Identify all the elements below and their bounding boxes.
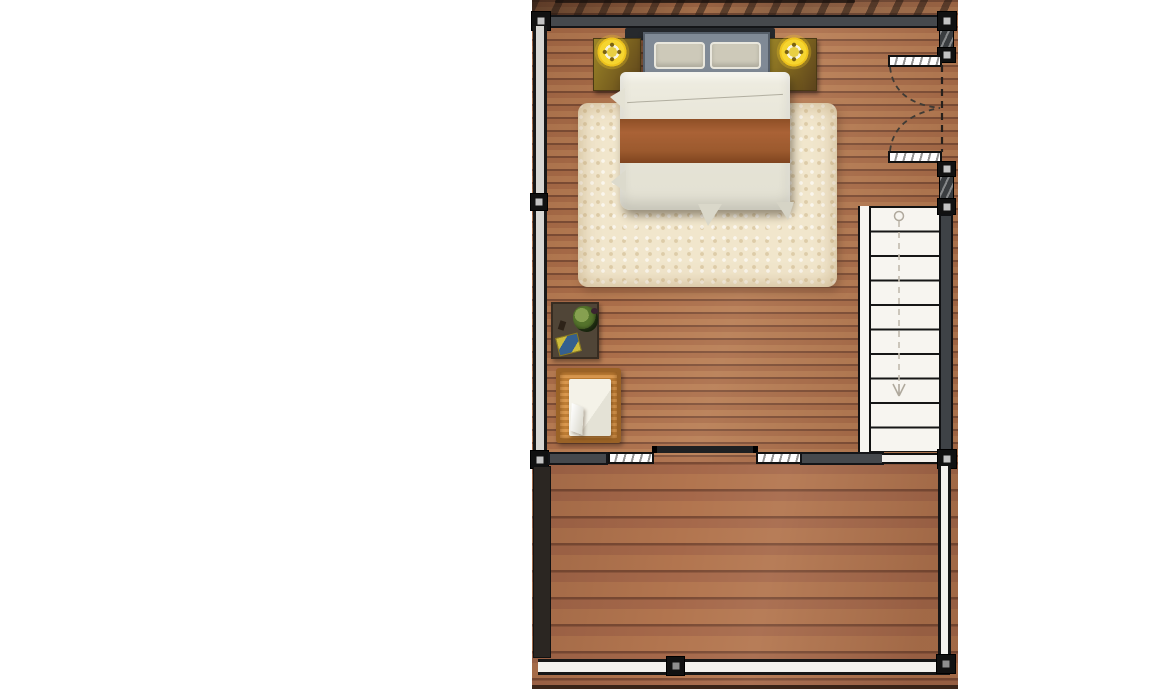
lamp-icon [594, 34, 630, 70]
desk [551, 302, 599, 359]
duvet-fold [776, 202, 794, 220]
phone-icon [558, 320, 566, 330]
door-jamb-wall [888, 151, 942, 163]
pillow [710, 42, 761, 69]
cushion-fold [570, 403, 583, 435]
wall-post [937, 11, 957, 31]
railing-post [936, 654, 956, 674]
wall-middle-segment [548, 452, 608, 465]
stair-stringer [858, 206, 871, 452]
chair-cushion [569, 379, 611, 436]
deck-wall-left [533, 466, 551, 658]
floor-plan-page [0, 0, 1176, 700]
wall-right-segment [939, 176, 954, 200]
wall-left [533, 26, 547, 454]
floor-plan [530, 0, 960, 691]
deck-railing-right [938, 466, 951, 662]
wall-post [937, 198, 956, 215]
railing-post [666, 656, 685, 676]
duvet-fold [698, 204, 722, 226]
bed-headboard [643, 32, 770, 75]
window [756, 452, 802, 464]
window [608, 452, 654, 464]
wall-under-stairs [882, 453, 938, 464]
door-jamb-wall [888, 55, 942, 67]
lamp-icon [776, 34, 812, 70]
wall-post [530, 193, 548, 211]
plant-berry-icon [591, 308, 598, 314]
wall-right-segment [939, 30, 954, 48]
bed-stripe [620, 119, 790, 163]
deck-floor [532, 462, 958, 687]
duvet-seam [627, 94, 783, 103]
duvet-fold [611, 170, 626, 192]
wall-right-stair [939, 214, 953, 451]
deck-railing-bottom [538, 659, 950, 675]
sliding-door [652, 446, 758, 453]
wall-middle-segment [800, 452, 884, 465]
duvet-fold [610, 88, 625, 110]
book-icon [555, 333, 582, 357]
wicker-chair [556, 368, 621, 443]
pillow [654, 42, 705, 69]
bed [620, 72, 790, 210]
tree-branch-shadow [555, 0, 855, 3]
wall-top [538, 15, 950, 28]
wall-post [937, 161, 956, 177]
deck-edge-line [532, 685, 958, 689]
